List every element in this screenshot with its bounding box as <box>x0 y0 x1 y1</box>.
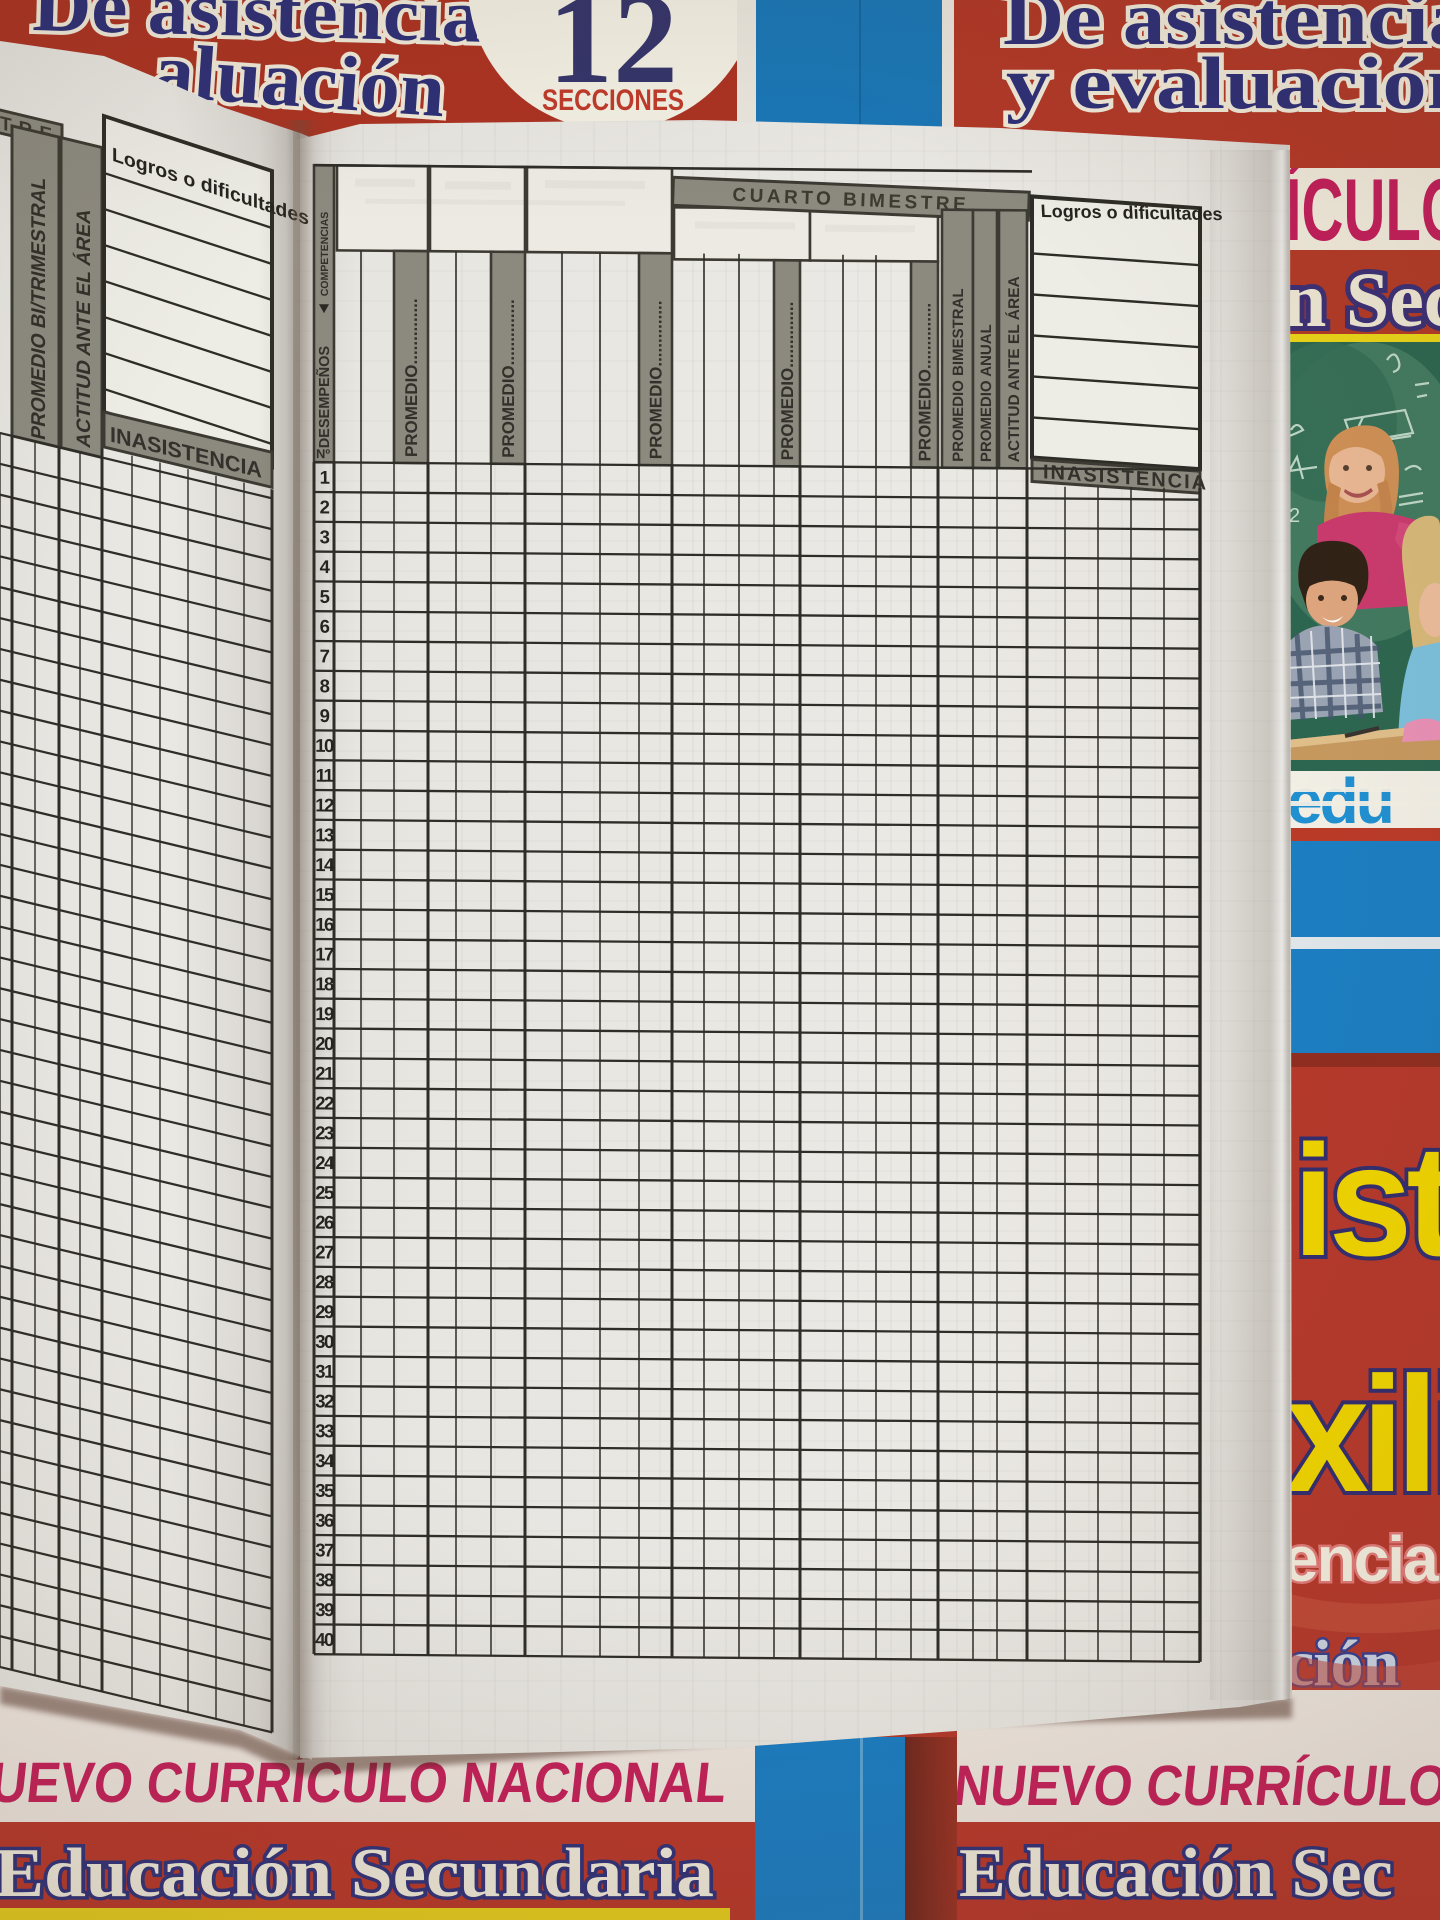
svg-text:Logros o dificultades: Logros o dificultades <box>1040 201 1223 224</box>
svg-text:13: 13 <box>315 824 334 845</box>
svg-text:xili: xili <box>1287 1343 1440 1526</box>
svg-text:COMPETENCIAS: COMPETENCIAS <box>319 212 331 297</box>
svg-text:7: 7 <box>320 645 330 666</box>
svg-text:16: 16 <box>315 914 334 935</box>
svg-text:4: 4 <box>320 556 331 577</box>
svg-text:14: 14 <box>315 854 335 875</box>
svg-text:20: 20 <box>315 1033 334 1054</box>
svg-text:18: 18 <box>315 973 334 994</box>
svg-text:1: 1 <box>320 467 330 488</box>
svg-text:RÍCULO: RÍCULO <box>1287 168 1440 250</box>
svg-text:31: 31 <box>315 1361 334 1382</box>
svg-text:40: 40 <box>315 1629 334 1650</box>
svg-text:27: 27 <box>315 1241 334 1262</box>
svg-text:encia: encia <box>1287 1523 1439 1595</box>
svg-text:34: 34 <box>315 1450 335 1471</box>
svg-text:ACTITUD ANTE EL ÁREA: ACTITUD ANTE EL ÁREA <box>1006 276 1023 462</box>
svg-text:35: 35 <box>315 1480 334 1501</box>
svg-text:39: 39 <box>315 1599 334 1620</box>
svg-text:37: 37 <box>315 1539 334 1560</box>
svg-text:2: 2 <box>320 496 330 517</box>
svg-text:17: 17 <box>315 943 334 964</box>
svg-text:11: 11 <box>316 765 334 786</box>
svg-text:25: 25 <box>315 1182 334 1203</box>
svg-text:ACTITUD ANTE EL ÁREA: ACTITUD ANTE EL ÁREA <box>72 206 95 449</box>
svg-text:PROMEDIO..............: PROMEDIO.............. <box>778 302 797 461</box>
svg-text:19: 19 <box>315 1003 334 1024</box>
svg-text:28: 28 <box>315 1271 334 1292</box>
svg-text:24: 24 <box>315 1152 335 1173</box>
svg-text:n Sec: n Sec <box>1287 256 1440 334</box>
svg-text:PROMEDIO..............: PROMEDIO.............. <box>916 303 935 462</box>
svg-text:DESEMPEÑOS: DESEMPEÑOS <box>315 346 333 449</box>
svg-text:26: 26 <box>315 1212 334 1233</box>
svg-text:12: 12 <box>315 794 334 815</box>
svg-text:PROMEDIO BI/TRIMESTRAL: PROMEDIO BI/TRIMESTRAL <box>28 175 50 442</box>
svg-text:10: 10 <box>315 735 334 756</box>
svg-text:PROMEDIO..............: PROMEDIO.............. <box>402 298 421 457</box>
svg-text:y evaluación: y evaluación <box>1006 43 1440 125</box>
svg-text:33: 33 <box>315 1420 334 1441</box>
svg-text:15: 15 <box>315 884 334 905</box>
svg-text:6: 6 <box>320 616 330 637</box>
svg-text:Nº: Nº <box>316 446 330 461</box>
svg-text:36: 36 <box>315 1510 334 1531</box>
svg-text:38: 38 <box>315 1569 334 1590</box>
svg-text:PROMEDIO..............: PROMEDIO.............. <box>647 300 666 459</box>
svg-text:22: 22 <box>315 1092 334 1113</box>
svg-text:32: 32 <box>315 1390 334 1411</box>
svg-text:23: 23 <box>315 1122 334 1143</box>
svg-text:29: 29 <box>315 1301 334 1322</box>
svg-text:8: 8 <box>320 675 330 696</box>
svg-text:30: 30 <box>315 1331 334 1352</box>
svg-text:PROMEDIO BIMESTRAL: PROMEDIO BIMESTRAL <box>950 288 967 461</box>
svg-text:3: 3 <box>320 526 330 547</box>
svg-text:9: 9 <box>320 705 330 726</box>
svg-text:ist: ist <box>1293 1111 1440 1288</box>
svg-text:PROMEDIO..............: PROMEDIO.............. <box>499 299 518 458</box>
svg-text:5: 5 <box>320 586 330 607</box>
svg-text:PROMEDIO ANUAL: PROMEDIO ANUAL <box>978 324 995 462</box>
svg-text:21: 21 <box>315 1063 334 1084</box>
